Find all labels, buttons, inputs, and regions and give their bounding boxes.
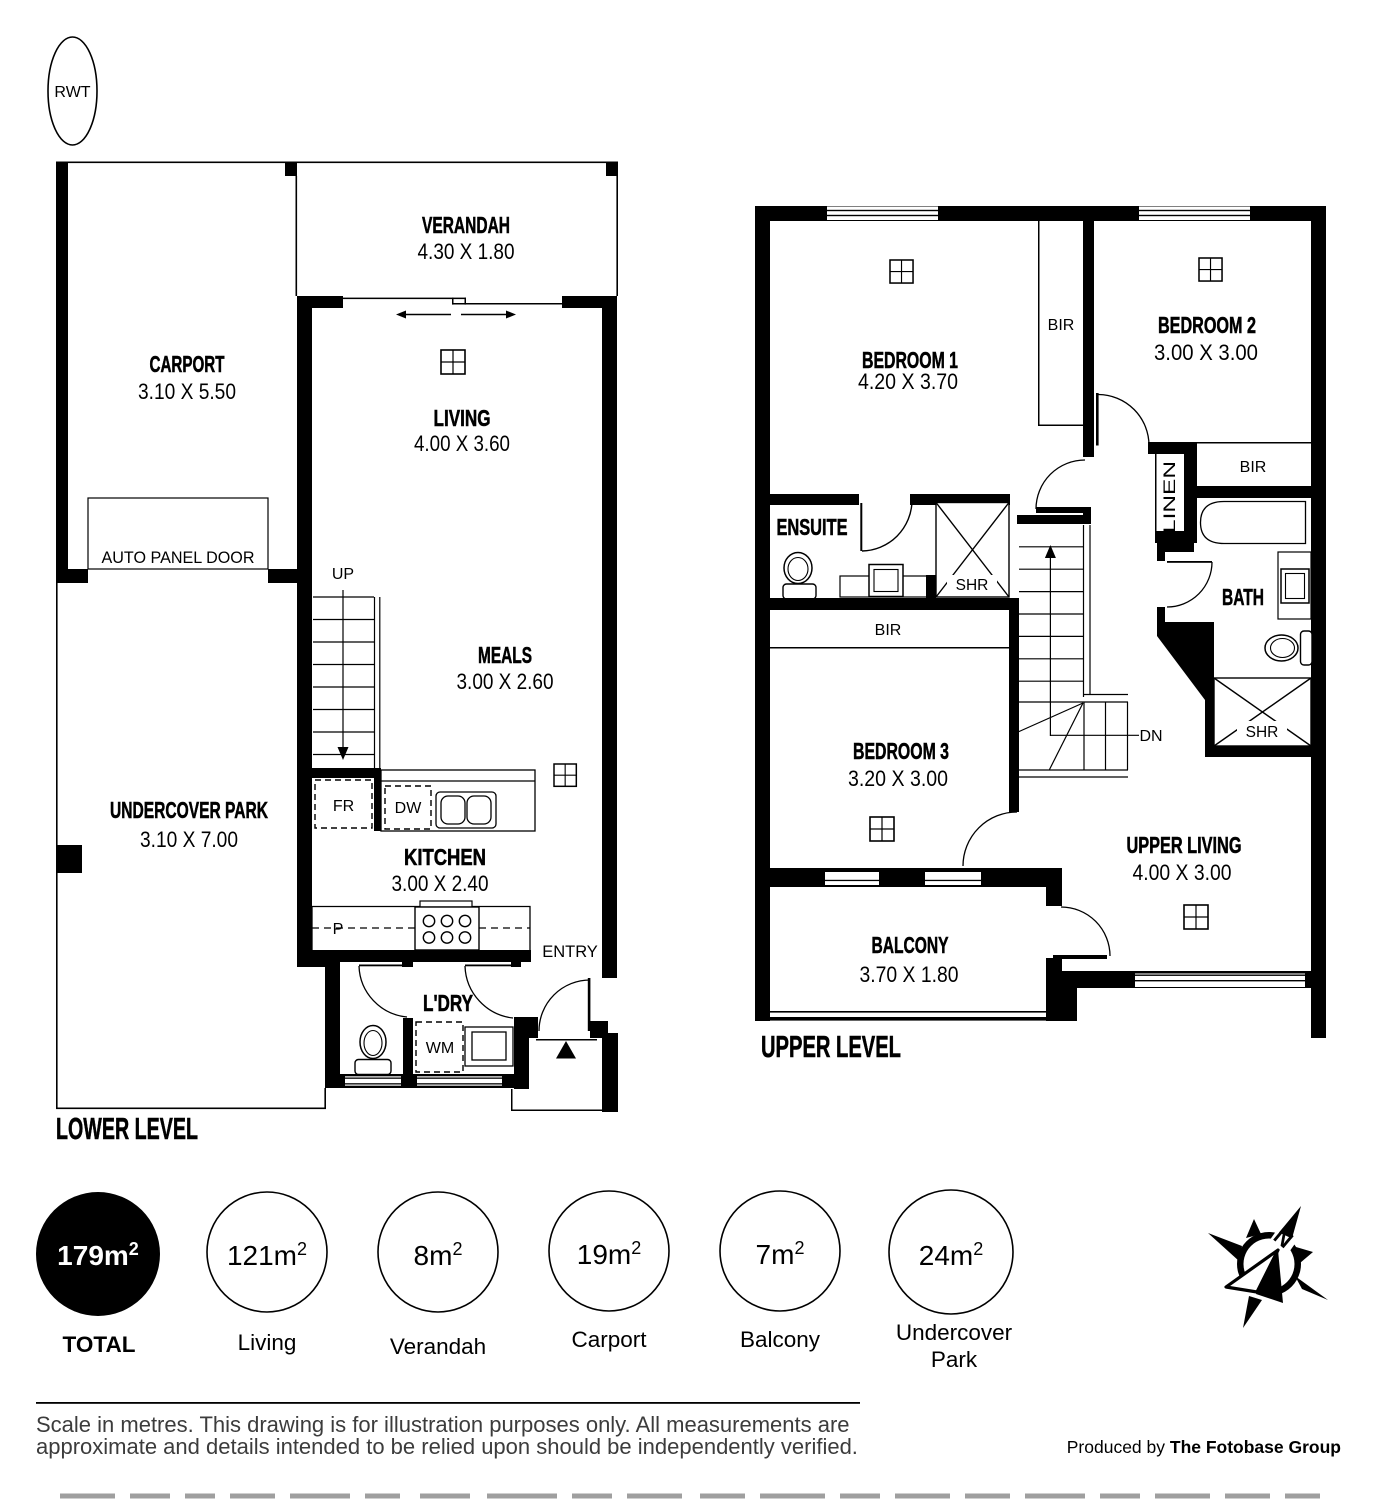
svg-text:179m2: 179m2 bbox=[57, 1239, 139, 1271]
svg-text:DN: DN bbox=[1140, 728, 1163, 745]
svg-text:BATH: BATH bbox=[1222, 584, 1264, 610]
svg-text:Carport: Carport bbox=[571, 1327, 647, 1352]
svg-text:3.00 X 2.40: 3.00 X 2.40 bbox=[392, 871, 489, 896]
svg-text:MEALS: MEALS bbox=[478, 642, 532, 668]
svg-text:FR: FR bbox=[333, 798, 354, 815]
svg-text:4.00 X 3.60: 4.00 X 3.60 bbox=[414, 431, 510, 456]
svg-text:SHR: SHR bbox=[956, 577, 989, 594]
svg-text:BIR: BIR bbox=[875, 622, 902, 639]
svg-text:SHR: SHR bbox=[1246, 724, 1279, 741]
svg-text:AUTO PANEL DOOR: AUTO PANEL DOOR bbox=[102, 548, 255, 567]
svg-text:UNDERCOVER PARK: UNDERCOVER PARK bbox=[110, 797, 268, 823]
svg-text:ENTRY: ENTRY bbox=[542, 943, 598, 961]
svg-text:RWT: RWT bbox=[54, 84, 90, 101]
svg-text:CARPORT: CARPORT bbox=[150, 351, 225, 377]
svg-text:UPPER LEVEL: UPPER LEVEL bbox=[761, 1029, 901, 1064]
svg-text:3.00 X 3.00: 3.00 X 3.00 bbox=[1154, 340, 1258, 365]
svg-text:3.20 X 3.00: 3.20 X 3.00 bbox=[848, 766, 948, 791]
svg-text:DW: DW bbox=[395, 800, 423, 817]
svg-text:121m2: 121m2 bbox=[227, 1239, 307, 1271]
svg-text:VERANDAH: VERANDAH bbox=[422, 212, 510, 238]
svg-text:L'DRY: L'DRY bbox=[423, 990, 473, 1016]
svg-text:3.00 X 2.60: 3.00 X 2.60 bbox=[457, 669, 554, 694]
svg-text:BEDROOM 3: BEDROOM 3 bbox=[853, 738, 949, 764]
svg-text:UPPER LIVING: UPPER LIVING bbox=[1127, 832, 1242, 858]
svg-text:BIR: BIR bbox=[1240, 459, 1267, 476]
svg-text:Undercover: Undercover bbox=[896, 1320, 1013, 1345]
svg-text:Living: Living bbox=[238, 1330, 297, 1355]
svg-text:Verandah: Verandah bbox=[390, 1334, 486, 1359]
svg-text:3.10 X 5.50: 3.10 X 5.50 bbox=[138, 379, 236, 404]
svg-text:UP: UP bbox=[332, 566, 354, 583]
svg-text:LIVING: LIVING bbox=[434, 405, 491, 431]
svg-text:Park: Park bbox=[931, 1347, 978, 1372]
svg-text:BALCONY: BALCONY bbox=[872, 932, 949, 958]
svg-text:WM: WM bbox=[426, 1040, 454, 1057]
svg-text:approximate and details intend: approximate and details intended to be r… bbox=[36, 1434, 858, 1459]
svg-text:4.20 X 3.70: 4.20 X 3.70 bbox=[858, 369, 958, 394]
svg-text:4.30 X 1.80: 4.30 X 1.80 bbox=[418, 239, 515, 264]
svg-text:3.70 X 1.80: 3.70 X 1.80 bbox=[860, 962, 959, 987]
svg-text:P: P bbox=[333, 921, 344, 938]
svg-text:TOTAL: TOTAL bbox=[63, 1332, 136, 1357]
svg-text:LOWER LEVEL: LOWER LEVEL bbox=[56, 1111, 198, 1146]
svg-text:BIR: BIR bbox=[1048, 317, 1075, 334]
svg-text:3.10 X 7.00: 3.10 X 7.00 bbox=[140, 827, 238, 852]
svg-text:4.00 X 3.00: 4.00 X 3.00 bbox=[1133, 860, 1232, 885]
svg-text:LINEN: LINEN bbox=[1161, 461, 1179, 533]
svg-text:KITCHEN: KITCHEN bbox=[404, 844, 486, 870]
svg-text:Balcony: Balcony bbox=[740, 1327, 821, 1352]
svg-text:BEDROOM 2: BEDROOM 2 bbox=[1158, 312, 1256, 338]
svg-text:ENSUITE: ENSUITE bbox=[777, 514, 848, 540]
svg-text:Produced by The Fotobase Group: Produced by The Fotobase Group bbox=[1067, 1437, 1341, 1457]
